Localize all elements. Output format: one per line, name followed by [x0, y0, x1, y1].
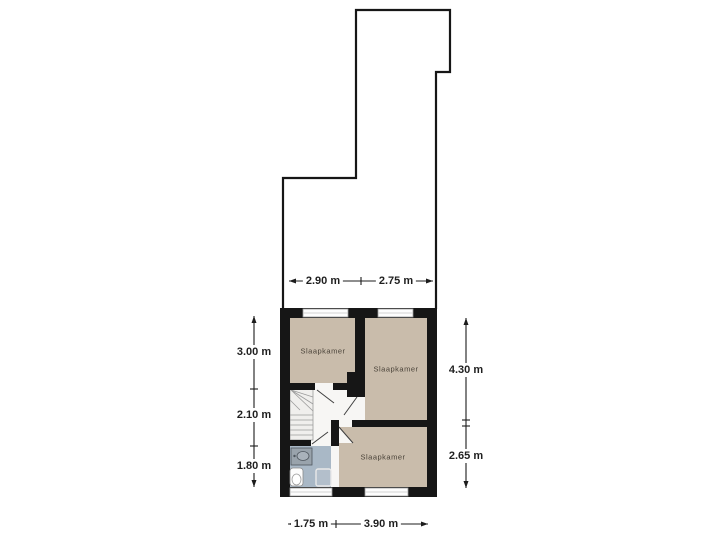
- wall-bedroom1-bedroom2: [355, 318, 365, 397]
- wall-hall-bedroom3: [331, 420, 339, 446]
- wall-right: [427, 308, 437, 497]
- wall-below-bedroom1-right: [333, 383, 355, 390]
- toilet-bowl: [292, 474, 301, 485]
- wall-bathroom-top: [290, 440, 311, 446]
- stairs-icon: [290, 388, 313, 440]
- wall-left: [280, 308, 290, 497]
- dimension-label-left-1: 3.00 m: [234, 345, 274, 359]
- plot-outline: [283, 10, 450, 309]
- floorplan-canvas: Slaapkamer Slaapkamer Slaapkamer 2.90 m …: [0, 0, 720, 540]
- room-label-bedroom-2: Slaapkamer: [373, 365, 418, 374]
- wall-bedroom2-bedroom3: [352, 420, 427, 427]
- wall-below-bedroom1-left: [290, 383, 315, 390]
- room-label-bedroom-3: Slaapkamer: [360, 453, 405, 462]
- dimension-label-left-3: 1.80 m: [234, 459, 274, 473]
- dimension-label-top-2: 2.75 m: [376, 274, 416, 288]
- sink-tap: [293, 455, 295, 457]
- dimension-label-bottom-2: 3.90 m: [361, 517, 401, 531]
- dimension-label-top-1: 2.90 m: [303, 274, 343, 288]
- dimension-label-right-1: 4.30 m: [446, 363, 486, 377]
- sink-basin: [297, 452, 309, 461]
- dimension-label-right-2: 2.65 m: [446, 449, 486, 463]
- room-label-bedroom-1: Slaapkamer: [300, 347, 345, 356]
- dimension-label-left-2: 2.10 m: [234, 408, 274, 422]
- shower-icon: [316, 469, 331, 486]
- dimension-label-bottom-1: 1.75 m: [291, 517, 331, 531]
